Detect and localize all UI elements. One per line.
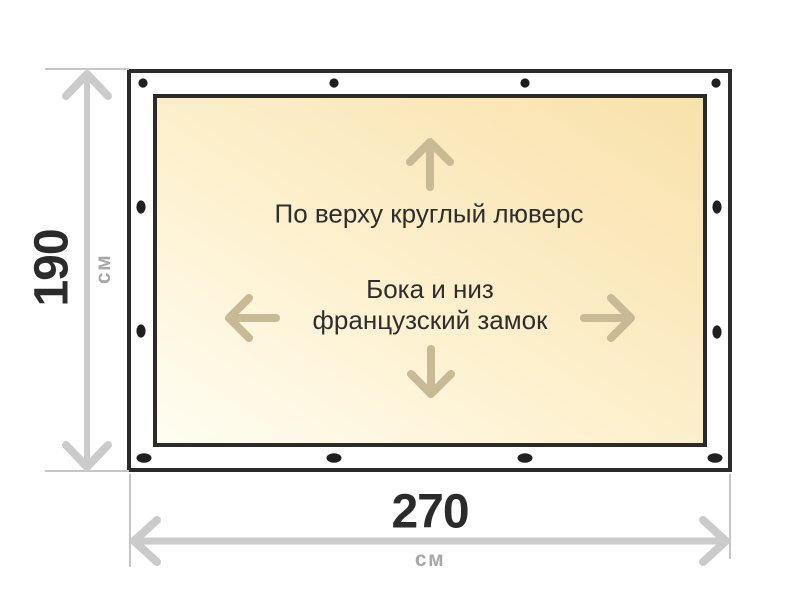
grommet [520, 78, 529, 87]
grommet [329, 78, 338, 87]
top-edge-note: По верху круглый люверс [275, 199, 584, 230]
grommet [138, 78, 147, 87]
right-arrow-icon [584, 298, 631, 338]
width-value: 270 [391, 485, 468, 540]
grommet [136, 200, 145, 213]
grommet [136, 324, 145, 337]
grommet [518, 453, 533, 462]
sides-note-line1: Бока и низ [313, 274, 548, 305]
width-unit: см [415, 548, 445, 572]
sides-bottom-note: Бока и низ французский замок [313, 274, 548, 336]
tarp-dimension-diagram: 190 см 270 см По верху круглый люверс Бо… [0, 0, 800, 600]
sides-note-line2: французский замок [313, 305, 548, 336]
direction-arrows [229, 142, 631, 394]
grommet [327, 453, 342, 462]
height-value: 190 [25, 229, 80, 306]
grommet [711, 78, 720, 87]
grommet [712, 200, 721, 213]
grommets [136, 78, 722, 462]
grommet [708, 453, 723, 462]
down-arrow-icon [411, 349, 451, 394]
grommet [137, 453, 152, 462]
left-arrow-icon [229, 298, 276, 338]
up-arrow-icon [410, 142, 450, 187]
height-unit: см [92, 254, 116, 284]
grommet [712, 325, 721, 338]
